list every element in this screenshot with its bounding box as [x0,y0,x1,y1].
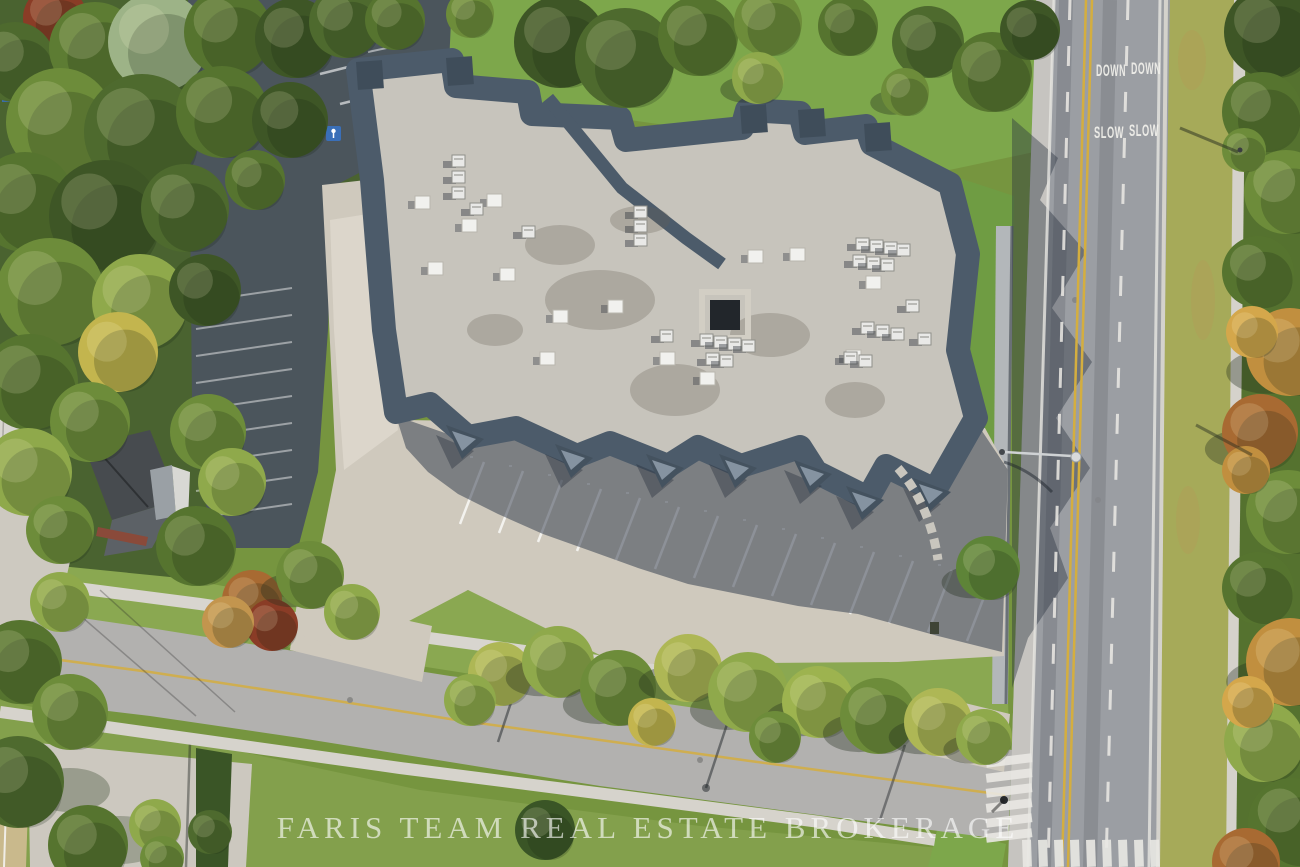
hvac-unit [452,171,465,183]
tree-highlight [145,841,167,863]
tree-highlight [755,717,781,743]
hvac-unit [897,244,910,256]
road-marking-down-left: DOWN [1096,61,1126,80]
tree-highlight [178,403,216,441]
tree-highlight [586,20,636,70]
tree-highlight [135,805,161,831]
tree-highlight [886,74,910,98]
skylight [608,300,623,313]
tree-highlight [1231,82,1271,122]
skylight [748,250,763,263]
stair-tower [740,104,768,134]
tree-highlight [911,696,945,730]
skylight [660,352,675,365]
hvac-unit [918,333,931,345]
crosswalk-stripe [1070,840,1080,867]
crosswalk-stripe [1102,840,1112,867]
skylight [553,310,568,323]
tree-highlight [264,8,304,48]
tree-highlight [633,704,657,728]
tree-highlight [1230,245,1266,281]
tree-highlight [524,7,570,53]
manhole [347,697,353,703]
streetlight-head [1071,452,1081,462]
tree-highlight [283,549,317,583]
skylight [700,372,715,385]
tree-highlight [59,392,99,432]
hvac-unit [470,203,483,215]
stair-tower [864,122,892,152]
tree-highlight [667,6,707,46]
skylight [428,262,443,275]
tree-highlight [18,81,72,135]
tree-highlight [1230,403,1268,441]
skylight [500,268,515,281]
tree-highlight [151,175,195,219]
tree-highlight [738,58,764,84]
crosswalk-stripe [1118,840,1128,867]
atrium-hole [710,300,740,330]
dry-patch [1176,486,1200,554]
hvac-unit [859,355,872,367]
tree-highlight [450,680,476,706]
tree-highlight [1256,629,1300,673]
manhole [1095,497,1101,503]
tree-highlight [1232,312,1258,338]
tree-highlight [37,579,67,609]
tree-highlight [57,815,97,855]
hvac-unit [452,187,465,199]
stair-tower [356,60,384,90]
road-marking-slow-left: SLOW [1094,123,1124,142]
hvac-unit [634,206,647,218]
aerial-photo: DOWN DOWN SLOW SLOW [0,0,1300,867]
pole-base [1238,148,1243,153]
tree-highlight [661,642,695,676]
crosswalk-stripe [1134,840,1144,867]
tree-highlight [790,675,826,711]
tree-highlight [59,13,105,59]
tree-highlight [717,662,757,702]
tree-highlight [208,602,234,628]
tree-highlight [252,605,278,631]
tree-highlight [848,687,886,725]
hvac-unit [634,234,647,246]
watermark: FARIS TEAM REAL ESTATE BROKERAGE [277,810,1020,845]
tree-highlight [186,77,232,123]
hvac-unit [742,340,755,352]
tree-highlight [1007,7,1037,37]
tree-highlight [260,91,298,129]
tree-highlight [1258,789,1300,833]
skylight [415,196,430,209]
stair-tower [798,108,826,138]
tree-highlight [8,251,62,305]
tree-highlight [961,42,1001,82]
tree-highlight [232,157,262,187]
hvac-unit [522,226,535,238]
tree-highlight [97,88,155,146]
tree-highlight [1227,452,1251,476]
tree-highlight [530,635,566,671]
hvac-unit [720,355,733,367]
crosswalk-stripe [1054,840,1064,867]
road-marking-slow-right: SLOW [1129,121,1159,140]
hvac-unit [906,300,919,312]
stair-tower [446,56,474,86]
dry-patch [1191,260,1215,340]
tree-highlight [194,0,238,43]
tree-highlight [33,504,67,538]
tree-highlight [165,516,205,556]
hvac-unit [881,259,894,271]
skylight [487,194,502,207]
crosswalk-stripe [1086,840,1096,867]
tree-highlight [1228,682,1254,708]
skylight [866,276,881,289]
tree-highlight [177,263,213,299]
tree-highlight [40,683,78,721]
tree-highlight [193,815,215,837]
tree-highlight [1230,561,1266,597]
tree-highlight [963,544,995,576]
crosswalk-stripe [1038,840,1048,867]
tree-highlight [330,591,358,619]
tree-highlight [103,266,151,314]
tree-highlight [87,322,127,362]
skylight [540,352,555,365]
crosswalk-stripe [1150,840,1160,867]
hvac-unit [660,330,673,342]
tree-highlight [962,716,990,744]
crosswalk-main-road [1022,840,1160,867]
tree-highlight [825,3,855,33]
hvac-unit [634,220,647,232]
lamp-head-shadow [702,784,710,792]
tree-highlight [205,456,239,490]
apartment-building-roof [356,56,976,530]
utility-box [930,622,939,634]
roof-stain [825,382,885,418]
skylight [790,248,805,261]
skylight [462,219,477,232]
roof-stain [467,314,523,346]
dry-patch [1178,30,1206,90]
hvac-unit [891,328,904,340]
handicap-parking-icon [326,126,341,141]
tree-highlight [119,4,169,54]
hvac-unit [452,155,465,167]
tree-highlight [61,173,117,229]
streetlight-pole [999,449,1005,455]
tree-highlight [588,659,626,697]
crosswalk-stripe [1022,840,1032,867]
road-marking-down-right: DOWN [1131,59,1161,78]
tree-highlight [900,15,936,51]
manhole [697,757,703,763]
